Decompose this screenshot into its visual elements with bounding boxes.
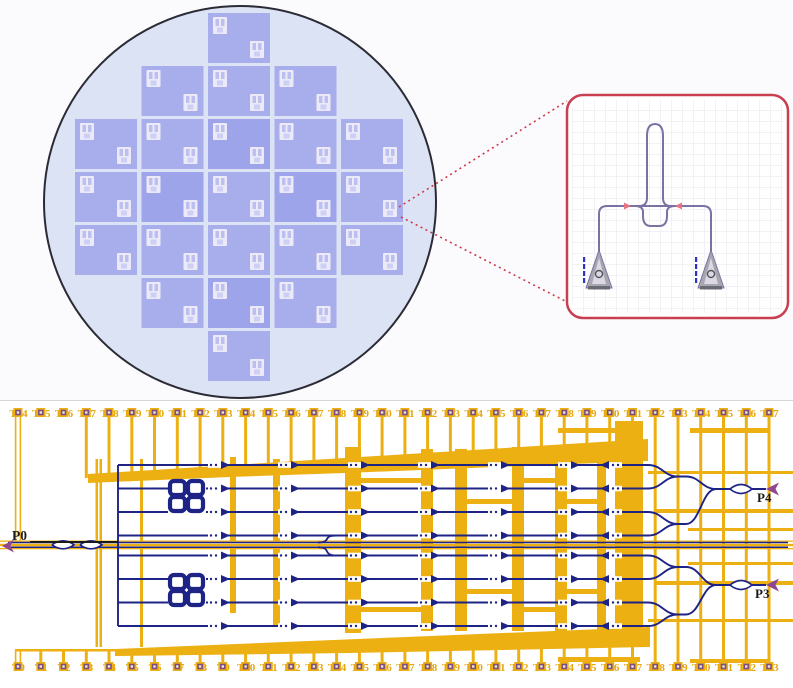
bottom-pad bbox=[105, 662, 114, 671]
top-pad bbox=[469, 408, 478, 417]
metal-trace bbox=[565, 499, 606, 504]
phase-shifter-block bbox=[188, 575, 203, 589]
top-pad bbox=[378, 408, 387, 417]
die-device-mark bbox=[184, 200, 198, 217]
metal-trace bbox=[130, 417, 133, 476]
taper-arrow-icon bbox=[571, 575, 580, 583]
taper-arrow-icon bbox=[501, 599, 510, 607]
top-pad bbox=[127, 408, 136, 417]
top-pad bbox=[674, 408, 683, 417]
taper-arrow-icon bbox=[291, 575, 300, 583]
wafer-overview-panel bbox=[0, 0, 793, 400]
die-device-mark bbox=[317, 94, 331, 111]
die-device-mark bbox=[250, 359, 264, 376]
die-device-mark bbox=[213, 123, 227, 140]
metal-trace bbox=[244, 648, 247, 662]
figure-page: T34T0T35T1T36T2T37T3T38T4T39T5T40T6T41T7… bbox=[0, 0, 793, 688]
taper-arrow-icon bbox=[221, 532, 230, 540]
die-device-mark bbox=[346, 176, 360, 193]
top-pad bbox=[651, 408, 660, 417]
bottom-pad bbox=[491, 662, 500, 671]
die-device-mark bbox=[117, 147, 131, 164]
metal-trace bbox=[522, 607, 565, 612]
die-device-mark bbox=[280, 176, 294, 193]
metal-trace bbox=[631, 417, 634, 445]
die-device-mark bbox=[346, 123, 360, 140]
metal-trace bbox=[648, 471, 793, 474]
top-pad bbox=[696, 408, 705, 417]
metal-trace bbox=[62, 649, 65, 662]
taper-arrow-icon bbox=[501, 552, 510, 560]
bottom-pad bbox=[378, 662, 387, 671]
coupler-lens-icon bbox=[730, 581, 752, 590]
die-device-mark bbox=[80, 123, 94, 140]
bottom-pad bbox=[59, 662, 68, 671]
bottom-pad bbox=[605, 662, 614, 671]
die-device-mark bbox=[184, 147, 198, 164]
top-pad bbox=[355, 408, 364, 417]
top-pad bbox=[82, 408, 91, 417]
taper-arrow-icon bbox=[221, 599, 230, 607]
top-pad bbox=[560, 408, 569, 417]
taper-arrow-icon bbox=[571, 532, 580, 540]
metal-trace bbox=[563, 635, 566, 663]
die-device-mark bbox=[250, 41, 264, 58]
top-pad bbox=[446, 408, 455, 417]
metal-trace bbox=[153, 651, 156, 662]
die-device-mark bbox=[147, 176, 161, 193]
die-device-mark bbox=[184, 253, 198, 270]
metal-trace bbox=[357, 607, 431, 612]
bottom-pad bbox=[696, 662, 705, 671]
taper-arrow-icon bbox=[571, 599, 580, 607]
taper-arrow-icon bbox=[501, 485, 510, 493]
chip-layout-svg: T34T0T35T1T36T2T37T3T38T4T39T5T40T6T41T7… bbox=[0, 401, 793, 687]
taper-arrow-icon bbox=[501, 532, 510, 540]
metal-trace bbox=[745, 417, 748, 664]
taper-arrow-icon bbox=[291, 532, 300, 540]
taper-arrow-icon bbox=[431, 532, 440, 540]
taper-arrow-icon bbox=[501, 575, 510, 583]
taper-arrow-icon bbox=[361, 532, 370, 540]
metal-trace bbox=[426, 640, 429, 662]
taper-arrow-icon bbox=[221, 508, 230, 516]
metal-trace bbox=[517, 636, 520, 662]
metal-trace bbox=[449, 639, 452, 662]
phase-shifter-block bbox=[188, 591, 203, 605]
metal-trace bbox=[494, 637, 497, 662]
taper-arrow-icon bbox=[291, 508, 300, 516]
metal-trace bbox=[273, 459, 280, 541]
metal-trace bbox=[267, 647, 270, 662]
top-pad bbox=[241, 408, 250, 417]
taper-arrow-icon bbox=[221, 552, 230, 560]
taper-arrow-icon bbox=[361, 622, 370, 630]
die-device-mark bbox=[250, 147, 264, 164]
taper-arrow-icon bbox=[221, 622, 230, 630]
taper-arrow-icon bbox=[431, 508, 440, 516]
phase-shifter-block bbox=[170, 481, 185, 495]
top-pad bbox=[582, 408, 591, 417]
top-pad bbox=[628, 408, 637, 417]
metal-trace bbox=[608, 417, 611, 446]
top-pad bbox=[196, 408, 205, 417]
die-device-mark bbox=[280, 282, 294, 299]
metal-trace bbox=[565, 589, 606, 594]
bottom-pad bbox=[469, 662, 478, 671]
metal-trace bbox=[768, 417, 771, 664]
metal-trace bbox=[20, 417, 22, 541]
metal-trace bbox=[654, 417, 657, 664]
wafer-svg bbox=[0, 0, 793, 400]
metal-trace bbox=[357, 478, 431, 483]
phase-shifter-block bbox=[170, 497, 185, 511]
bottom-pad bbox=[14, 662, 23, 671]
taper-arrow-icon bbox=[501, 508, 510, 516]
metal-trace bbox=[540, 636, 543, 663]
die-device-mark bbox=[280, 70, 294, 87]
taper-arrow-icon bbox=[361, 552, 370, 560]
top-pad bbox=[514, 408, 523, 417]
die-device-mark bbox=[213, 229, 227, 246]
bottom-pad bbox=[765, 662, 774, 671]
die-device-mark bbox=[346, 229, 360, 246]
metal-trace bbox=[585, 634, 588, 662]
die-device-mark bbox=[184, 306, 198, 323]
die-device-mark bbox=[213, 282, 227, 299]
taper-arrow-icon bbox=[571, 552, 580, 560]
metal-trace bbox=[335, 644, 338, 662]
metal-trace bbox=[96, 549, 99, 647]
top-pad bbox=[59, 408, 68, 417]
bottom-pad bbox=[287, 662, 296, 671]
bottom-pad bbox=[309, 662, 318, 671]
top-pad bbox=[218, 408, 227, 417]
taper-arrow-icon bbox=[361, 508, 370, 516]
metal-trace bbox=[465, 589, 522, 594]
taper-arrow-icon bbox=[291, 622, 300, 630]
die-device-mark bbox=[184, 94, 198, 111]
port-label-p3: P3 bbox=[755, 586, 770, 601]
metal-trace bbox=[358, 417, 361, 462]
metal-trace bbox=[381, 417, 384, 460]
bottom-pad bbox=[196, 662, 205, 671]
metal-trace bbox=[39, 649, 42, 662]
taper-arrow-icon bbox=[221, 485, 230, 493]
bottom-pad bbox=[446, 662, 455, 671]
bottom-pad bbox=[150, 662, 159, 671]
die-device-mark bbox=[147, 282, 161, 299]
metal-trace bbox=[140, 549, 143, 647]
top-pad bbox=[309, 408, 318, 417]
die-device-mark bbox=[80, 229, 94, 246]
coupler-lens-icon bbox=[730, 485, 752, 494]
metal-trace bbox=[244, 417, 247, 469]
glyph-gap bbox=[609, 509, 622, 515]
metal-trace bbox=[722, 417, 725, 664]
metal-trace bbox=[267, 417, 270, 467]
bottom-pad bbox=[82, 662, 91, 671]
top-pad bbox=[14, 408, 23, 417]
top-pad bbox=[605, 408, 614, 417]
metal-trace bbox=[140, 459, 143, 541]
top-pad bbox=[36, 408, 45, 417]
die-device-mark bbox=[317, 200, 331, 217]
die-device-mark bbox=[117, 253, 131, 270]
metal-trace bbox=[688, 528, 793, 531]
taper-arrow-icon bbox=[431, 575, 440, 583]
die-device-mark bbox=[250, 200, 264, 217]
die-device-mark bbox=[383, 147, 397, 164]
bottom-pad bbox=[582, 662, 591, 671]
die-device-mark bbox=[213, 335, 227, 352]
metal-trace bbox=[494, 417, 497, 453]
phase-shifter-block bbox=[188, 481, 203, 495]
bottom-pad bbox=[218, 662, 227, 671]
die-device-mark bbox=[317, 306, 331, 323]
top-pad bbox=[537, 408, 546, 417]
taper-arrow-icon bbox=[431, 552, 440, 560]
die-device-mark bbox=[117, 200, 131, 217]
bottom-pad bbox=[560, 662, 569, 671]
metal-trace bbox=[455, 449, 467, 631]
metal-trace bbox=[677, 417, 680, 664]
metal-trace bbox=[558, 428, 640, 433]
top-pad bbox=[105, 408, 114, 417]
taper-arrow-icon bbox=[291, 599, 300, 607]
glyph-gap bbox=[609, 576, 622, 582]
die-device-mark bbox=[383, 200, 397, 217]
bottom-pad bbox=[36, 662, 45, 671]
grating-base-right bbox=[700, 286, 722, 290]
metal-trace bbox=[15, 417, 17, 541]
metal-trace bbox=[100, 549, 103, 647]
metal-trace bbox=[522, 478, 565, 483]
metal-trace bbox=[699, 417, 702, 664]
top-pad bbox=[491, 408, 500, 417]
taper-arrow-icon bbox=[571, 622, 580, 630]
metal-trace bbox=[290, 646, 293, 662]
metal-trace bbox=[472, 417, 475, 455]
metal-trace bbox=[85, 417, 88, 478]
metal-trace bbox=[426, 417, 429, 458]
die-device-mark bbox=[250, 94, 264, 111]
metal-trace bbox=[108, 417, 111, 477]
glyph-gap bbox=[609, 486, 622, 492]
metal-trace bbox=[290, 417, 293, 466]
taper-arrow-icon bbox=[571, 508, 580, 516]
die-device-mark bbox=[280, 123, 294, 140]
metal-trace bbox=[20, 650, 22, 662]
taper-arrow-icon bbox=[431, 485, 440, 493]
taper-arrow-icon bbox=[431, 599, 440, 607]
taper-arrow-icon bbox=[571, 485, 580, 493]
taper-arrow-icon bbox=[431, 622, 440, 630]
bottom-pad bbox=[742, 662, 751, 671]
metal-trace bbox=[648, 619, 793, 622]
metal-trace bbox=[230, 457, 236, 541]
phase-shifter-block bbox=[188, 497, 203, 511]
glyph-gap bbox=[609, 600, 622, 606]
bottom-pad bbox=[173, 662, 182, 671]
die-device-mark bbox=[213, 176, 227, 193]
glyph-gap bbox=[609, 623, 622, 629]
port-label-p4: P4 bbox=[757, 490, 772, 505]
taper-arrow-icon bbox=[291, 485, 300, 493]
metal-trace bbox=[403, 641, 406, 662]
metal-trace bbox=[517, 417, 520, 452]
metal-trace bbox=[312, 645, 315, 662]
metal-trace bbox=[15, 650, 17, 662]
taper-arrow-icon bbox=[501, 622, 510, 630]
die-detail-inset bbox=[567, 95, 788, 318]
die-device-mark bbox=[383, 253, 397, 270]
bottom-pad bbox=[719, 662, 728, 671]
metal-trace bbox=[465, 499, 522, 504]
metal-trace bbox=[608, 633, 611, 662]
top-pad bbox=[332, 408, 341, 417]
die-device-mark bbox=[147, 123, 161, 140]
top-pad bbox=[400, 408, 409, 417]
metal-trace bbox=[273, 549, 280, 627]
taper-arrow-icon bbox=[221, 575, 230, 583]
top-pad bbox=[423, 408, 432, 417]
die-device-mark bbox=[80, 176, 94, 193]
metal-trace bbox=[85, 649, 88, 662]
bottom-pad bbox=[127, 662, 136, 671]
metal-trace bbox=[15, 649, 120, 652]
metal-trace bbox=[176, 650, 179, 662]
top-pad bbox=[719, 408, 728, 417]
metal-trace bbox=[403, 417, 406, 459]
die-device-mark bbox=[317, 253, 331, 270]
die-device-mark bbox=[280, 229, 294, 246]
metal-trace bbox=[563, 417, 566, 449]
bottom-pad bbox=[674, 662, 683, 671]
die-device-mark bbox=[147, 229, 161, 246]
port-label-p0: P0 bbox=[12, 528, 27, 543]
bottom-pad bbox=[355, 662, 364, 671]
metal-trace bbox=[100, 459, 103, 541]
top-pad bbox=[150, 408, 159, 417]
taper-arrow-icon bbox=[291, 552, 300, 560]
metal-trace bbox=[221, 649, 224, 663]
metal-trace bbox=[199, 649, 202, 662]
metal-trace bbox=[540, 417, 543, 451]
bottom-pad bbox=[514, 662, 523, 671]
die-device-mark bbox=[213, 17, 227, 34]
die-device-mark bbox=[147, 70, 161, 87]
taper-arrow-icon bbox=[361, 599, 370, 607]
top-pad bbox=[742, 408, 751, 417]
phase-shifter-block bbox=[170, 575, 185, 589]
bottom-pad bbox=[628, 662, 637, 671]
chip-layout-panel: T34T0T35T1T36T2T37T3T38T4T39T5T40T6T41T7… bbox=[0, 400, 793, 688]
bottom-pad bbox=[651, 662, 660, 671]
top-pad bbox=[287, 408, 296, 417]
die-device-mark bbox=[250, 253, 264, 270]
taper-arrow-icon bbox=[361, 575, 370, 583]
metal-trace bbox=[108, 649, 111, 662]
metal-trace bbox=[130, 652, 133, 662]
metal-trace bbox=[335, 417, 338, 463]
metal-trace bbox=[688, 562, 793, 565]
metal-trace bbox=[472, 638, 475, 662]
glyph-gap bbox=[609, 553, 622, 559]
grating-base-left bbox=[588, 286, 610, 290]
metal-trace bbox=[96, 459, 99, 541]
bottom-pad bbox=[332, 662, 341, 671]
bottom-pad bbox=[423, 662, 432, 671]
bottom-pad bbox=[241, 662, 250, 671]
taper-arrow-icon bbox=[361, 485, 370, 493]
top-pad bbox=[264, 408, 273, 417]
die-device-mark bbox=[317, 147, 331, 164]
bottom-pad bbox=[264, 662, 273, 671]
bottom-pad bbox=[537, 662, 546, 671]
metal-trace bbox=[631, 632, 634, 662]
metal-trace bbox=[312, 417, 315, 465]
metal-trace bbox=[449, 417, 452, 456]
bottom-pad bbox=[400, 662, 409, 671]
die-device-mark bbox=[213, 70, 227, 87]
metal-trace bbox=[585, 417, 588, 448]
metal-trace bbox=[381, 642, 384, 662]
top-pad bbox=[765, 408, 774, 417]
glyph-gap bbox=[609, 462, 622, 468]
metal-trace bbox=[358, 643, 361, 662]
phase-shifter-block bbox=[170, 591, 185, 605]
pad-layer bbox=[14, 408, 774, 671]
glyph-gap bbox=[609, 533, 622, 539]
metal-trace bbox=[199, 417, 202, 472]
die-device-mark bbox=[250, 306, 264, 323]
top-pad bbox=[173, 408, 182, 417]
